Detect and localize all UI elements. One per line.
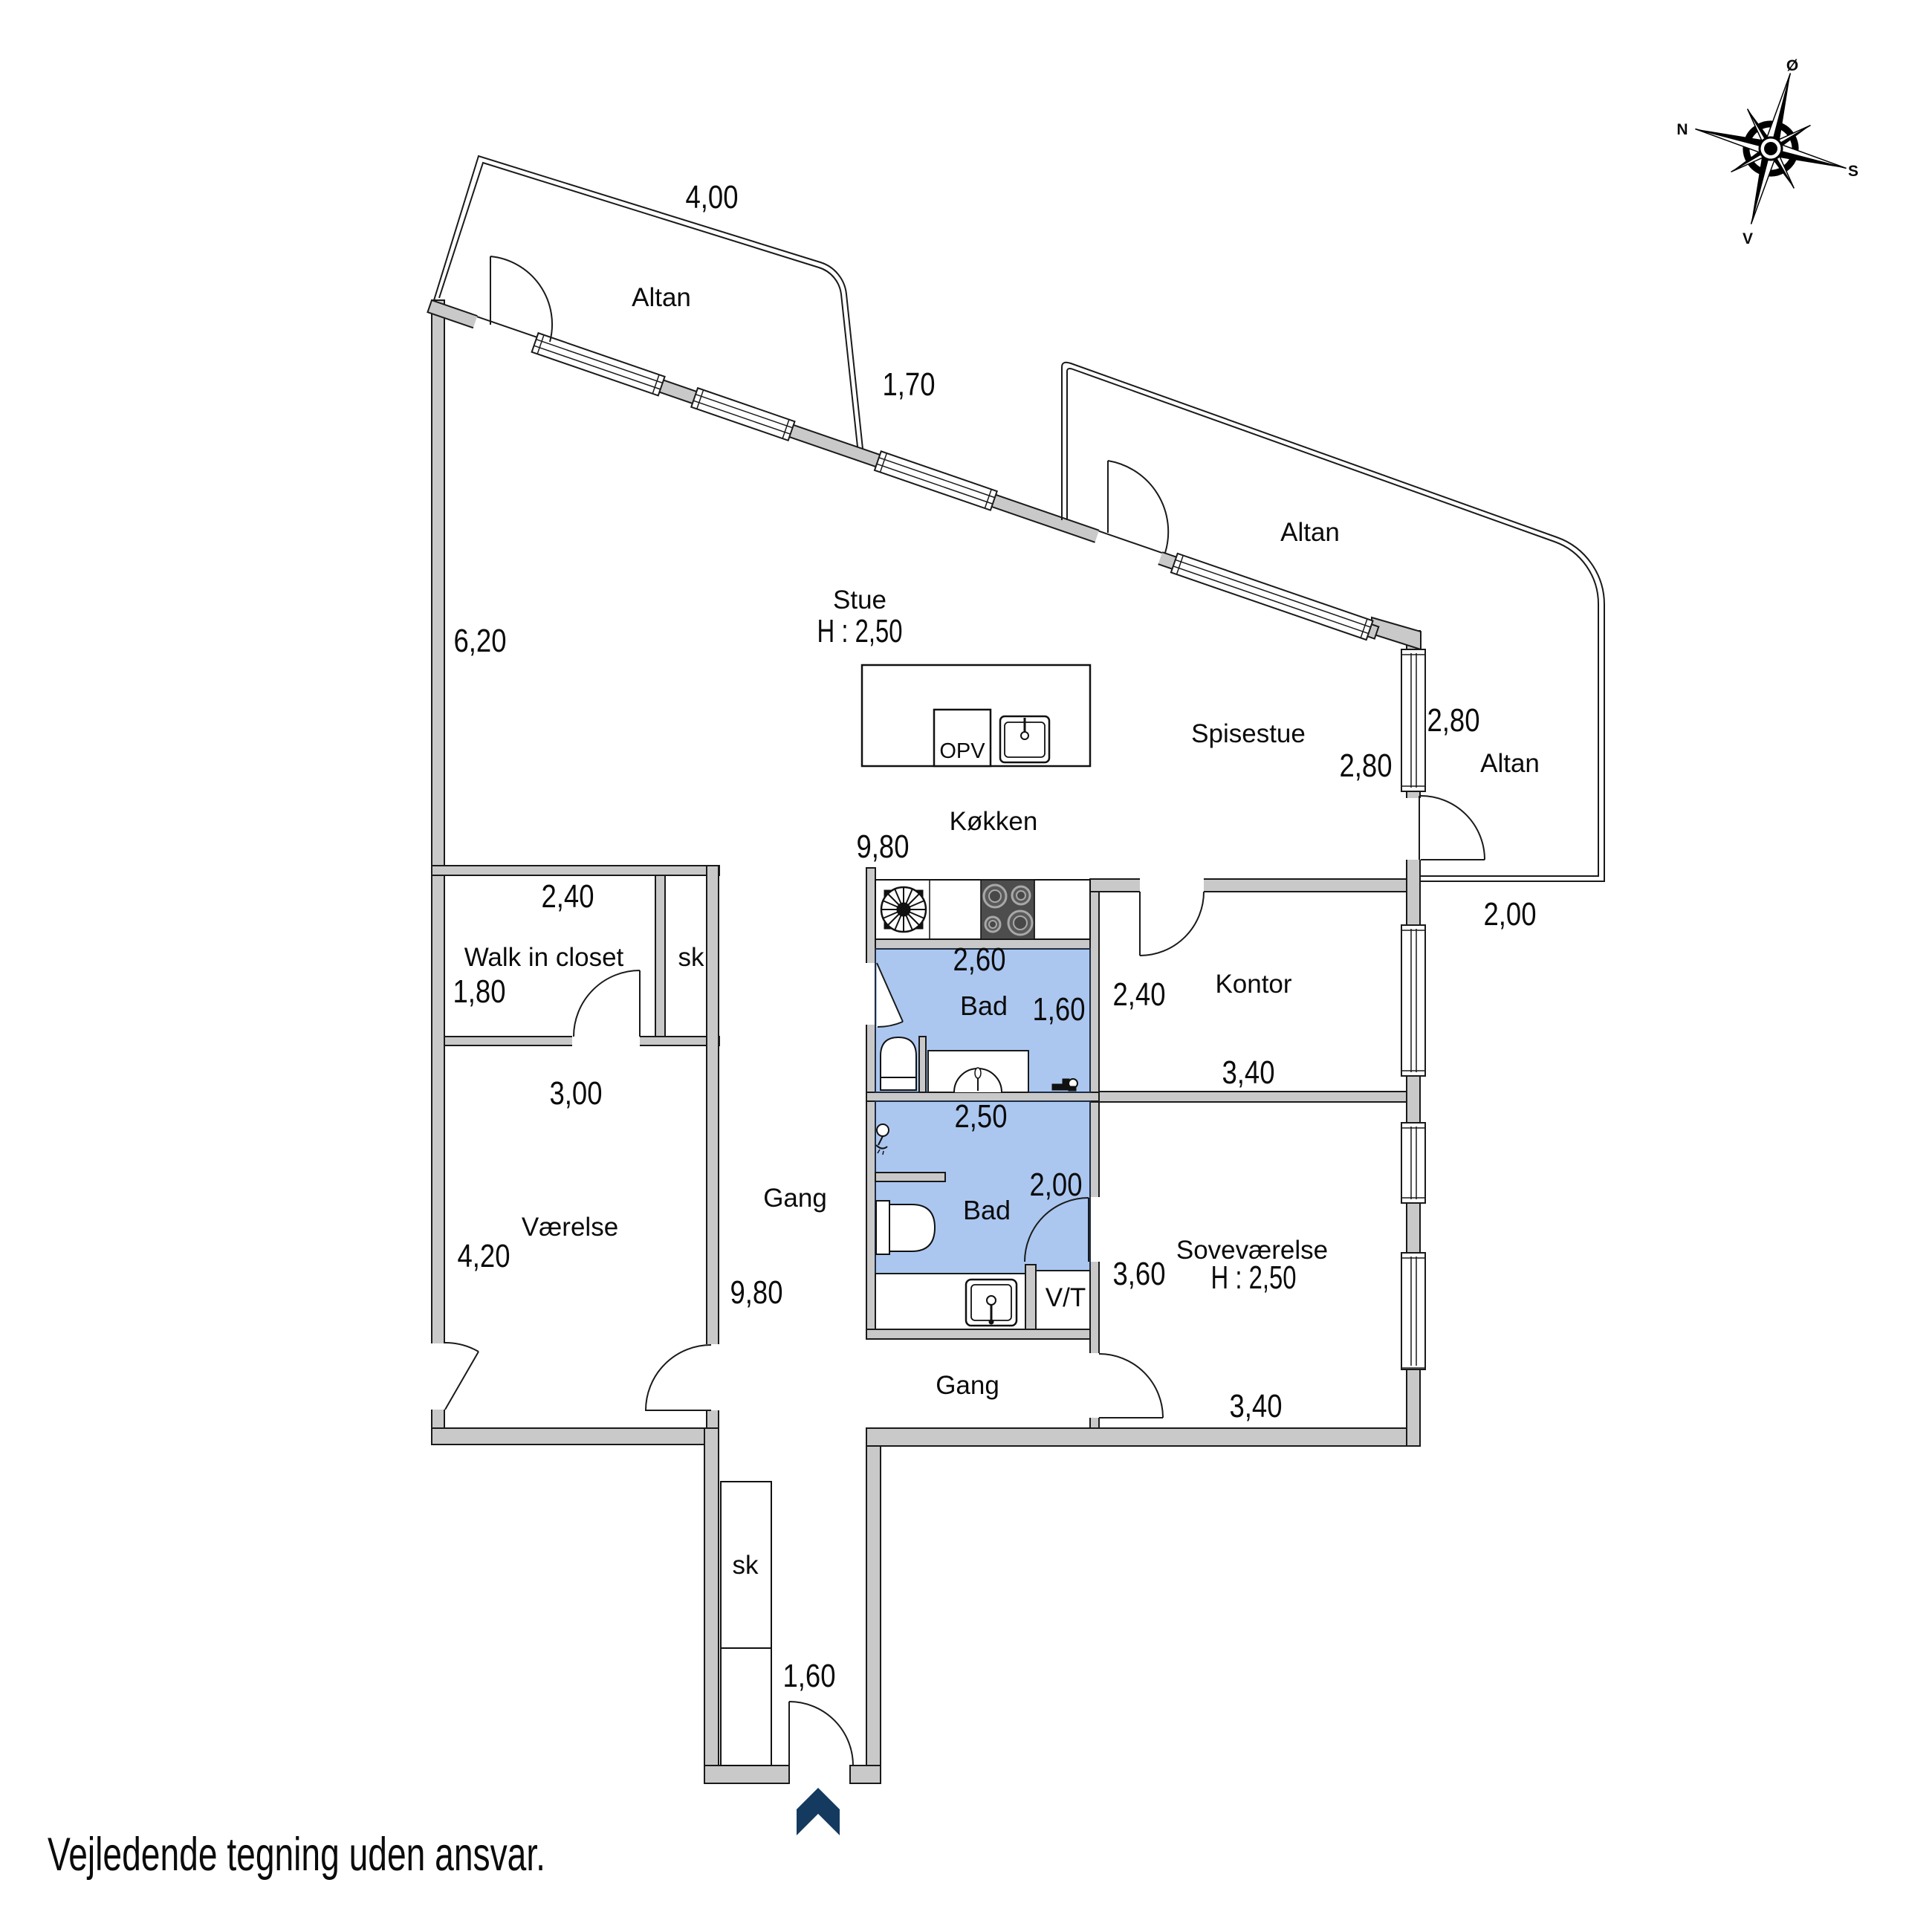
- svg-text:Spisestue: Spisestue: [1191, 719, 1306, 748]
- svg-text:2,00: 2,00: [1030, 1167, 1083, 1203]
- svg-text:1,60: 1,60: [783, 1658, 836, 1694]
- svg-text:2,40: 2,40: [542, 878, 594, 915]
- svg-text:Bad: Bad: [963, 1195, 1011, 1225]
- svg-text:Altan: Altan: [1280, 518, 1340, 547]
- svg-text:Stue: Stue: [833, 586, 886, 615]
- svg-text:1,70: 1,70: [883, 366, 936, 403]
- svg-text:4,00: 4,00: [686, 179, 739, 215]
- svg-text:6,20: 6,20: [454, 623, 507, 659]
- svg-text:Vejledende tegning uden ansvar: Vejledende tegning uden ansvar.: [48, 1829, 545, 1881]
- svg-text:Ø: Ø: [1786, 57, 1798, 74]
- svg-text:3,00: 3,00: [550, 1075, 603, 1112]
- svg-text:Værelse: Værelse: [522, 1213, 618, 1242]
- svg-text:S: S: [1848, 163, 1858, 180]
- svg-text:1,80: 1,80: [453, 973, 506, 1010]
- svg-text:V/T: V/T: [1046, 1283, 1086, 1312]
- svg-text:Altan: Altan: [1480, 749, 1540, 778]
- svg-text:Bad: Bad: [960, 990, 1008, 1021]
- svg-text:sk: sk: [733, 1551, 759, 1580]
- svg-text:1,60: 1,60: [1033, 991, 1086, 1028]
- svg-text:4,20: 4,20: [458, 1238, 510, 1274]
- svg-text:N: N: [1676, 121, 1688, 138]
- svg-text:sk: sk: [678, 943, 705, 972]
- svg-text:2,50: 2,50: [955, 1098, 1008, 1135]
- svg-text:3,40: 3,40: [1230, 1388, 1283, 1424]
- svg-text:2,80: 2,80: [1340, 748, 1393, 784]
- svg-text:9,80: 9,80: [730, 1274, 783, 1311]
- svg-text:Soveværelse: Soveværelse: [1176, 1236, 1328, 1265]
- svg-text:H : 2,50: H : 2,50: [1211, 1259, 1297, 1296]
- svg-text:2,80: 2,80: [1427, 702, 1480, 739]
- svg-text:OPV: OPV: [939, 739, 985, 763]
- svg-text:3,60: 3,60: [1113, 1256, 1166, 1292]
- svg-text:Walk in closet: Walk in closet: [464, 943, 624, 972]
- svg-text:3,40: 3,40: [1222, 1054, 1275, 1091]
- svg-text:Gang: Gang: [936, 1371, 999, 1400]
- svg-text:H : 2,50: H : 2,50: [817, 613, 903, 649]
- svg-text:Køkken: Køkken: [950, 807, 1038, 836]
- svg-text:9,80: 9,80: [857, 829, 910, 865]
- svg-text:2,00: 2,00: [1484, 896, 1537, 933]
- svg-text:V: V: [1743, 230, 1753, 247]
- svg-text:Gang: Gang: [763, 1184, 827, 1213]
- svg-text:Altan: Altan: [632, 283, 691, 312]
- svg-text:2,40: 2,40: [1113, 976, 1166, 1013]
- svg-text:Kontor: Kontor: [1215, 970, 1291, 999]
- svg-text:2,60: 2,60: [953, 941, 1006, 978]
